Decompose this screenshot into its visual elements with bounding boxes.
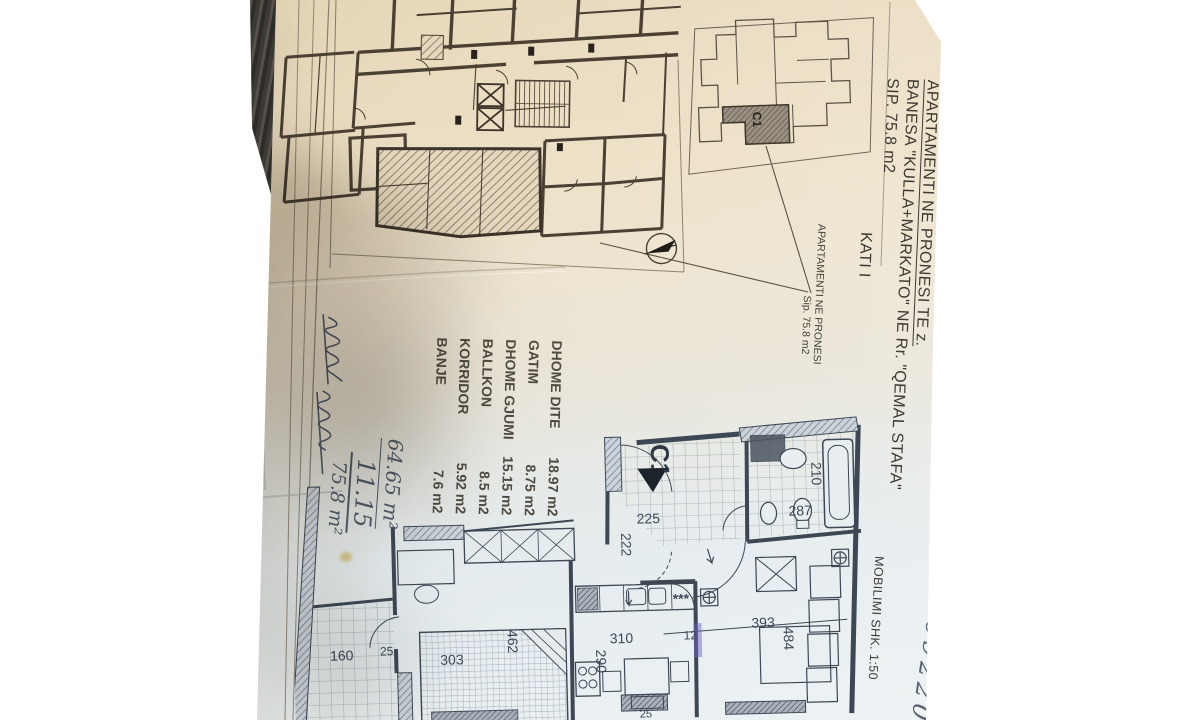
svg-text:287: 287 [788, 502, 812, 519]
leader-annotation: APARTAMENTI NE PRONESI Sip. 75.8 m2 [799, 223, 828, 364]
table-row: DHOME GJUMI15.15 m2 [495, 339, 523, 516]
staircase [515, 80, 570, 127]
room-area-table: DHOME DITE18.97 m2 GATIM8.75 m2 DHOME GJ… [426, 337, 569, 517]
site-unit-label: C1 [750, 112, 765, 128]
svg-text:25: 25 [640, 708, 653, 720]
highlighted-unit-c1: C1 [723, 105, 790, 145]
svg-text:225: 225 [636, 510, 660, 527]
svg-text:393: 393 [751, 614, 775, 631]
svg-text:310: 310 [610, 630, 634, 647]
table-row: BANJE7.6 m2 [426, 337, 454, 514]
table-row: KORRIDOR5.92 m2 [449, 338, 477, 515]
stars-symbol: *** [673, 590, 690, 606]
svg-text:12: 12 [684, 628, 698, 642]
paper-stain [340, 552, 352, 562]
svg-text:222: 222 [618, 533, 635, 557]
table-row: GATIM8.75 m2 [518, 340, 546, 517]
svg-text:484: 484 [781, 627, 798, 651]
highlighted-apartment-area [377, 147, 542, 238]
elevator-shafts [477, 84, 504, 130]
table-row: BALLKON8.5 m2 [472, 338, 500, 515]
hall-tiled-floor [621, 438, 746, 547]
svg-text:160: 160 [330, 647, 354, 664]
annotation-line2: Sip. 75.8 m2 [799, 295, 813, 364]
svg-text:290: 290 [593, 649, 610, 673]
svg-text:462: 462 [504, 630, 521, 654]
svg-text:25: 25 [380, 644, 394, 658]
svg-text:210: 210 [808, 462, 825, 486]
table-row: DHOME DITE18.97 m2 [541, 340, 569, 517]
paper-sheet: C1 [0, 0, 1200, 720]
photo-of-floorplan-document: C1 [0, 0, 1200, 720]
building-floor-plan [263, 0, 697, 288]
svg-text:303: 303 [440, 651, 464, 668]
corner-shadow [0, 0, 290, 250]
living-room-furniture [635, 539, 849, 706]
north-arrow-icon [644, 233, 676, 263]
